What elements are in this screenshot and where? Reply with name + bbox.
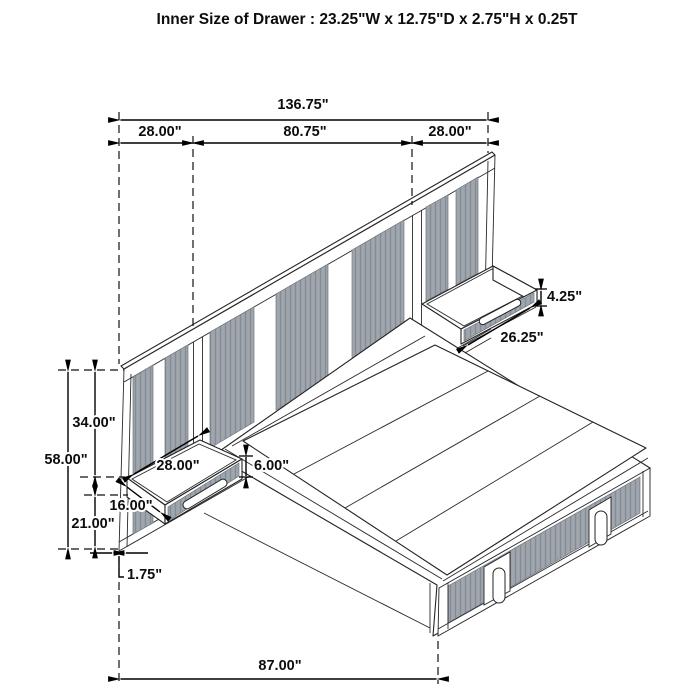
dim-top-to-drawer: 34.00" — [72, 415, 115, 431]
dim-drawer-to-floor: 21.00" — [71, 516, 114, 532]
dim-panel-thickness: 1.75" — [127, 567, 162, 583]
dim-right-drawer-width: 26.25" — [500, 330, 543, 346]
foot-drawer-handle-icon — [595, 511, 607, 545]
dim-bed-length: 87.00" — [258, 658, 301, 674]
dim-left-drawer-depth: 16.00" — [109, 498, 152, 514]
dimension-diagram: Inner Size of Drawer : 23.25"W x 12.75"D… — [0, 0, 700, 700]
page-title: Inner Size of Drawer : 23.25"W x 12.75"D… — [157, 11, 578, 28]
dim-right-drawer-height: 4.25" — [547, 289, 582, 305]
dim-right-section: 28.00" — [428, 124, 471, 140]
dim-panel-height: 58.00" — [44, 452, 87, 468]
dim-left-section: 28.00" — [138, 124, 181, 140]
dim-center-section: 80.75" — [283, 124, 326, 140]
foot-drawer-handle-icon — [493, 568, 505, 603]
dim-left-drawer-height: 6.00" — [254, 458, 289, 474]
drawing-canvas: Inner Size of Drawer : 23.25"W x 12.75"D… — [0, 0, 700, 700]
dim-left-drawer-width: 28.00" — [156, 458, 199, 474]
dim-total-width: 136.75" — [277, 97, 328, 113]
